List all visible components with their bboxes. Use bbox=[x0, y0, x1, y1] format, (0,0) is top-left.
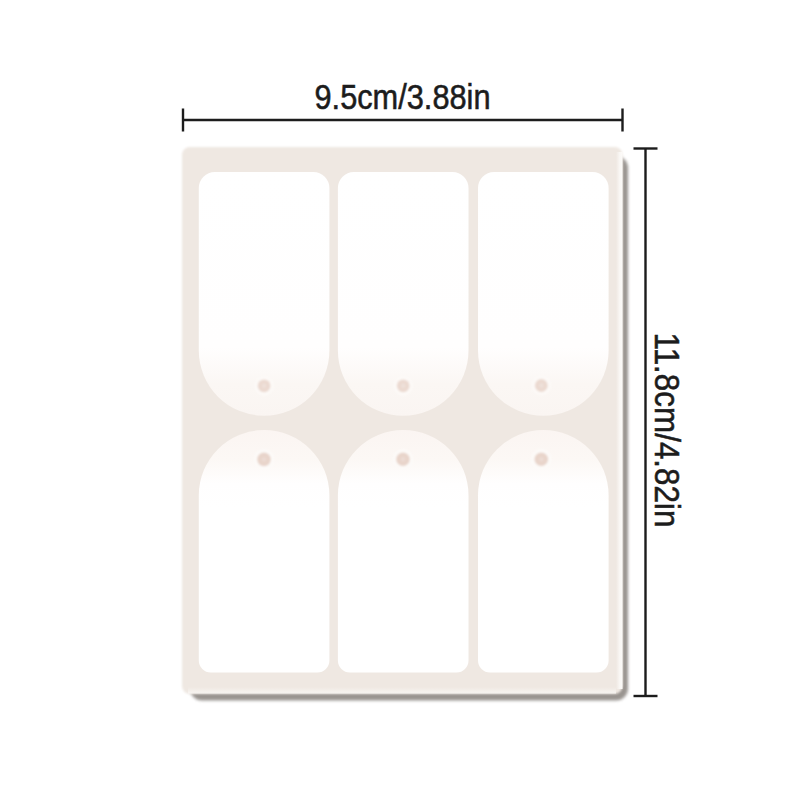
svg-text:9.5cm/3.88in: 9.5cm/3.88in bbox=[315, 78, 491, 116]
svg-text:11.8cm/4.82in: 11.8cm/4.82in bbox=[648, 333, 686, 528]
